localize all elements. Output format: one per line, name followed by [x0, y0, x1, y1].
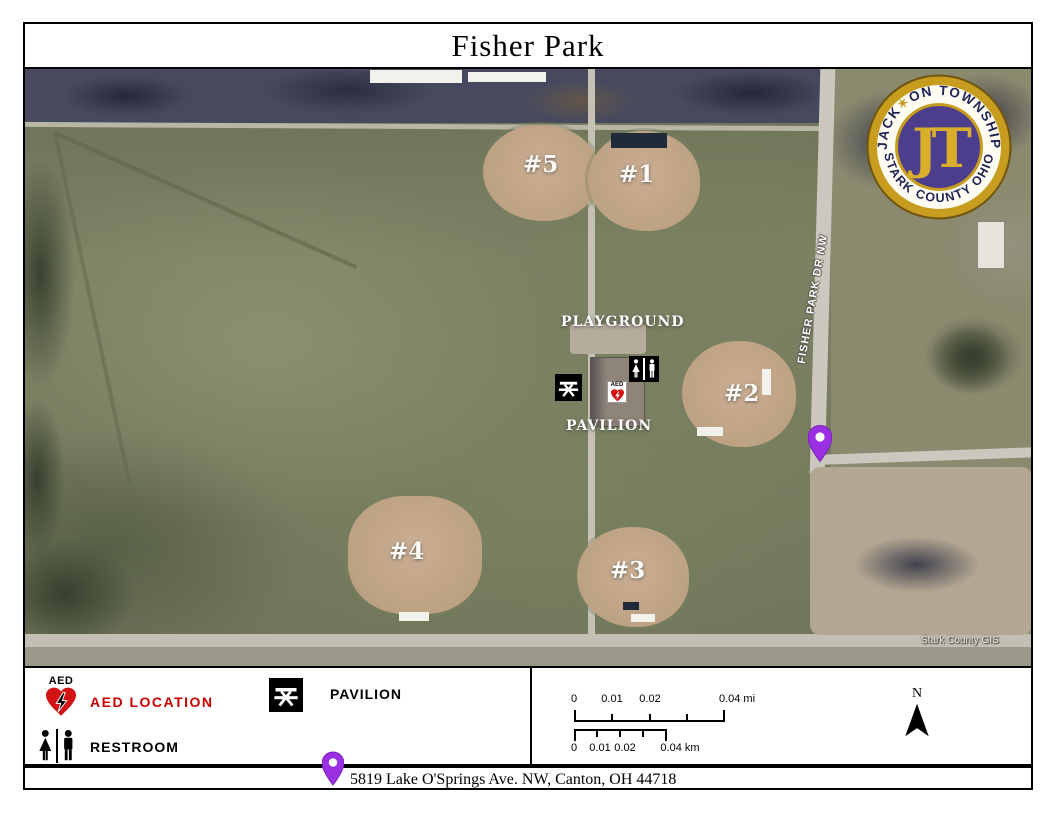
playground-label: PLAYGROUND — [561, 314, 684, 330]
field-label-4: #4 — [389, 538, 424, 565]
pavilion-legend-icon — [269, 678, 303, 712]
park-address: 5819 Lake O'Springs Ave. NW, Canton, OH … — [350, 771, 676, 789]
park-map-page: Fisher Park — [0, 0, 1056, 816]
map-credit: Stark County GIS — [921, 635, 999, 646]
north-arrow-icon — [903, 702, 931, 738]
scale-mi-001: 0.01 — [601, 693, 622, 705]
picnic-table-icon — [557, 376, 580, 399]
building-roof-top — [468, 72, 546, 82]
scale-km-001: 0.01 — [589, 742, 610, 754]
woman-icon-legend — [37, 729, 54, 763]
logo-monogram: JT — [908, 116, 972, 180]
scale-mi-0: 0 — [571, 693, 577, 705]
north-arrow: N — [887, 686, 947, 743]
path-top — [25, 122, 825, 131]
dugout-field-2b — [762, 369, 771, 395]
page-title: Fisher Park — [451, 28, 604, 64]
building-right-edge — [977, 221, 1005, 269]
pavilion-label: PAVILION — [566, 418, 652, 434]
building-roof-top-left — [370, 70, 462, 83]
dugout-field-3 — [631, 614, 655, 622]
aerial-map: #5 #1 #2 #4 #3 PLAYGROUND PAVILION FISHE… — [23, 69, 1033, 666]
north-label: N — [887, 686, 947, 702]
aed-legend-icon: AED — [41, 676, 81, 718]
tree-cluster-right — [930, 324, 1010, 394]
scale-bar-miles — [574, 712, 725, 722]
field-label-2: #2 — [724, 380, 759, 407]
scale-km-002: 0.02 — [614, 742, 635, 754]
dugout-field-2 — [697, 427, 723, 436]
field-label-3: #3 — [610, 557, 645, 584]
address-bar: 5819 Lake O'Springs Ave. NW, Canton, OH … — [23, 766, 1033, 790]
restroom-map-marker — [629, 356, 659, 382]
field-label-1: #1 — [619, 161, 654, 188]
legend-divider — [530, 668, 532, 764]
restroom-legend-label: RESTROOM — [90, 739, 179, 755]
map-pin-icon — [808, 422, 832, 470]
aed-heart-icon-legend — [44, 687, 78, 717]
field-label-5: #5 — [523, 151, 558, 178]
title-bar: Fisher Park — [23, 22, 1033, 69]
scale-bar-km — [574, 729, 667, 739]
aed-icon-text: AED — [41, 676, 81, 687]
restroom-divider-legend — [56, 729, 59, 763]
restroom-legend-icon — [37, 728, 77, 764]
aed-map-marker: AED — [607, 381, 627, 403]
road-bottom — [25, 634, 1033, 647]
bleacher-field-1 — [611, 133, 667, 148]
scale-km-0: 0 — [571, 742, 577, 754]
tree-cluster-bottom-left — [23, 539, 135, 649]
shed-field-3 — [623, 602, 639, 610]
scale-mi-002: 0.02 — [639, 693, 660, 705]
scale-km-004: 0.04 km — [660, 742, 699, 754]
restroom-divider — [643, 358, 645, 380]
aed-heart-icon — [610, 389, 625, 402]
address-pin-icon — [322, 748, 344, 794]
jackson-township-logo: JACK✶ON TOWNSHIP STARK COUNTY OHIO JT — [866, 74, 1012, 220]
bottom-strip — [25, 647, 1033, 666]
man-icon-legend — [60, 729, 77, 763]
man-icon — [647, 359, 657, 379]
trail-diagonal-1 — [54, 131, 357, 269]
woman-icon — [631, 359, 641, 379]
legend: AED AED LOCATION PAVILION — [23, 666, 1033, 766]
aed-map-text: AED — [611, 382, 624, 389]
dugout-field-4 — [399, 612, 429, 621]
pavilion-legend-label: PAVILION — [330, 686, 402, 702]
picnic-table-icon-legend — [272, 681, 300, 709]
tree-cluster-left-2 — [23, 399, 65, 559]
pavilion-map-marker — [555, 374, 582, 401]
parking-lot — [810, 467, 1032, 635]
aed-location-label: AED LOCATION — [90, 694, 214, 710]
scale-mi-004: 0.04 mi — [719, 693, 755, 705]
